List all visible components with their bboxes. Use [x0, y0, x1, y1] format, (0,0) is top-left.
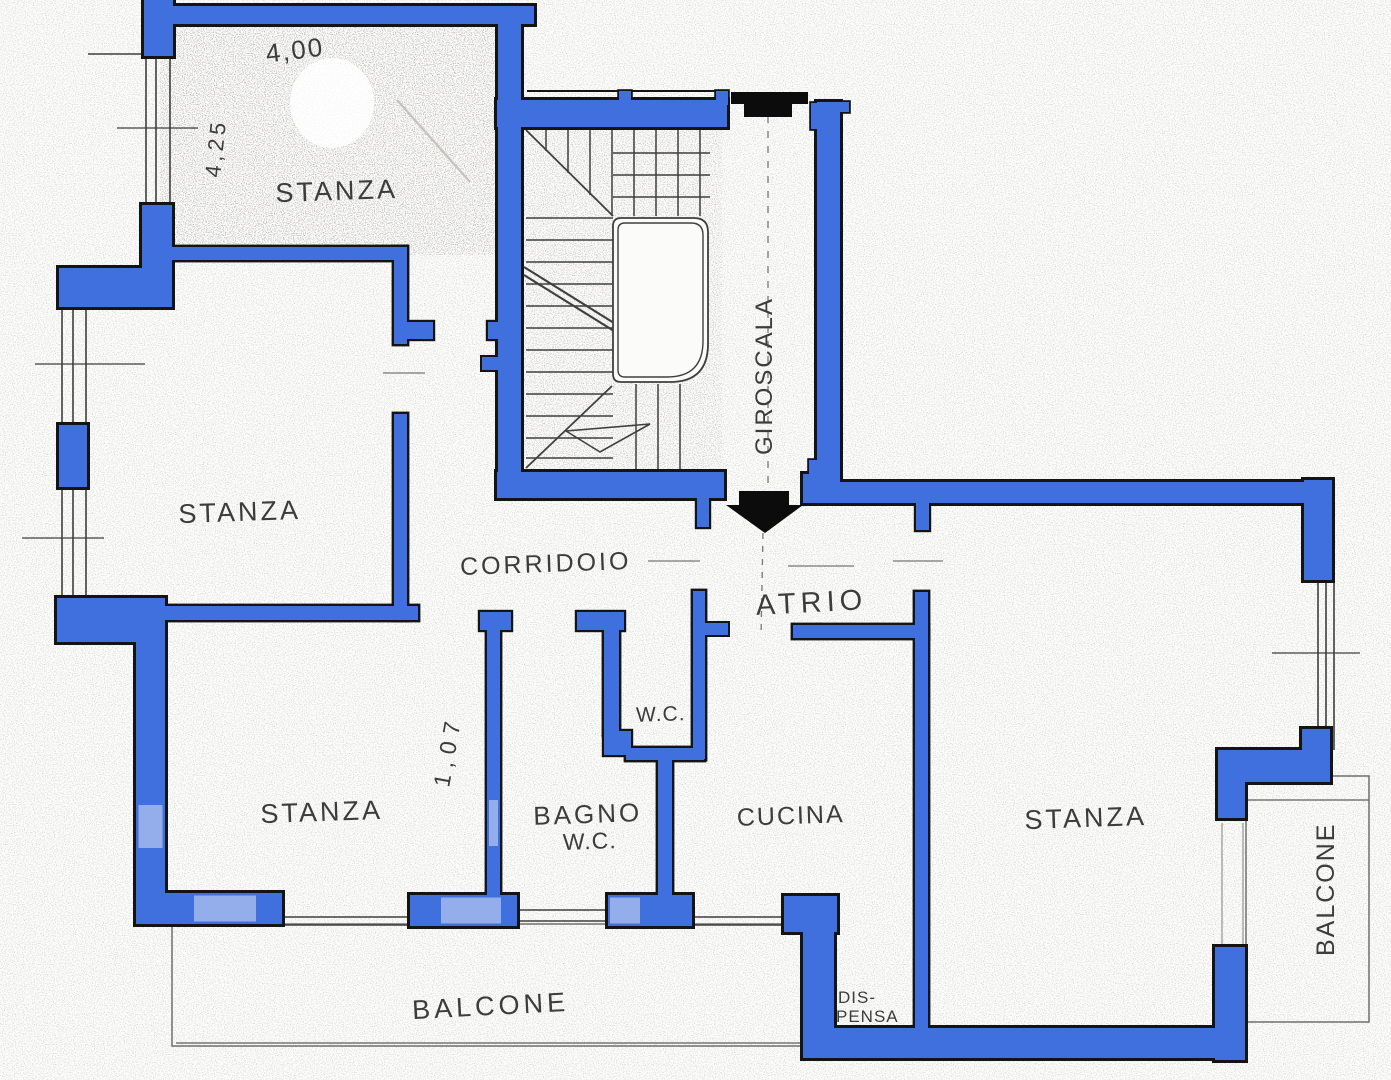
svg-text:STANZA: STANZA	[275, 174, 398, 208]
svg-text:DIS-: DIS-	[838, 988, 876, 1007]
svg-text:CUCINA: CUCINA	[736, 800, 845, 832]
svg-text:PENSA: PENSA	[836, 1007, 899, 1026]
svg-text:STANZA: STANZA	[260, 795, 383, 829]
svg-text:CORRIDOIO: CORRIDOIO	[460, 547, 632, 581]
svg-text:STANZA: STANZA	[178, 495, 301, 529]
svg-text:BALCONE: BALCONE	[1312, 823, 1340, 956]
svg-text:STANZA: STANZA	[1024, 801, 1147, 835]
svg-text:W.C.: W.C.	[636, 702, 686, 727]
svg-text:GIROSCALA: GIROSCALA	[751, 297, 778, 455]
svg-text:BAGNO: BAGNO	[533, 797, 643, 831]
svg-text:ATRIO: ATRIO	[755, 584, 868, 622]
svg-text:W.C.: W.C.	[562, 827, 617, 855]
